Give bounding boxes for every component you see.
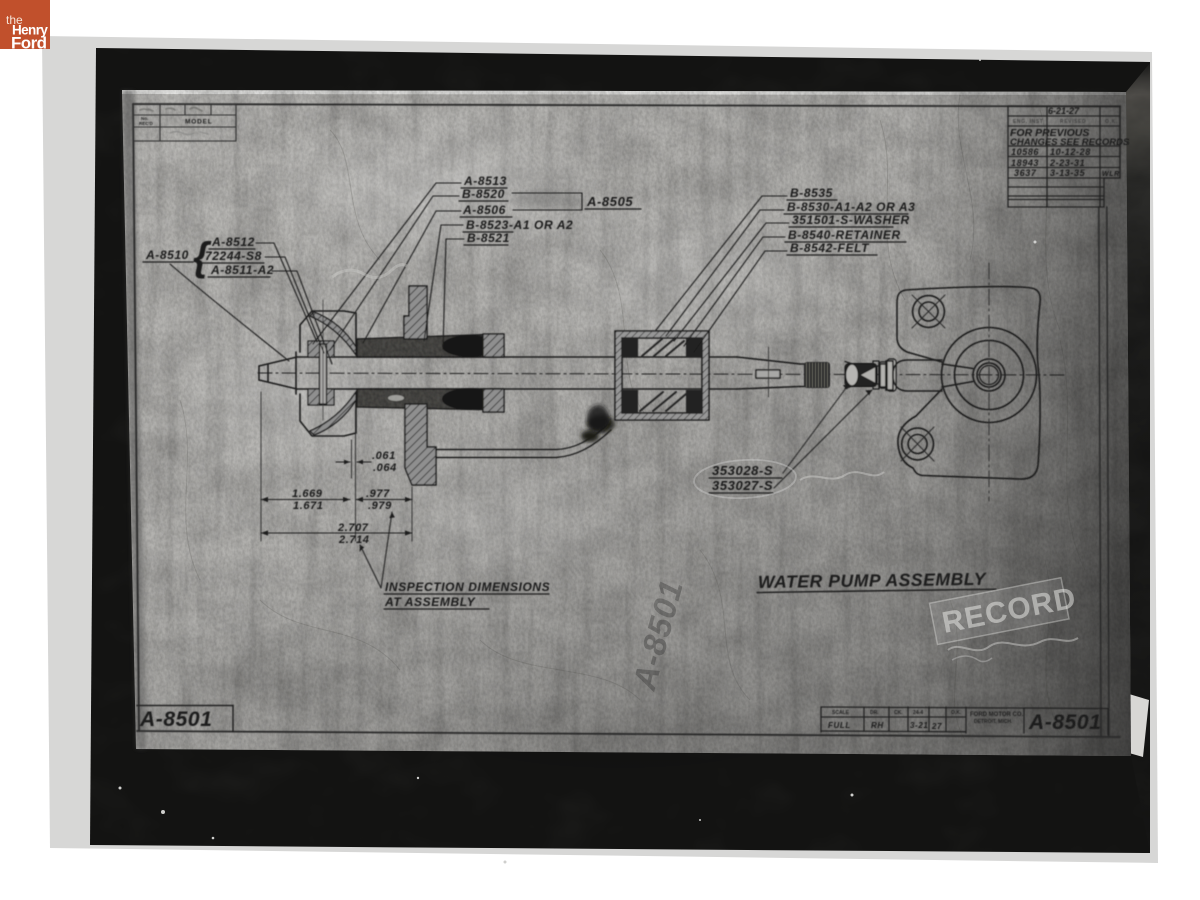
svg-text:A-8510: A-8510 [145,248,189,262]
svg-text:FORD MOTOR CO.: FORD MOTOR CO. [970,712,1024,718]
svg-text:27: 27 [931,722,942,731]
svg-text:A-8501: A-8501 [139,708,212,731]
svg-text:.977: .977 [366,488,390,500]
svg-text:B-8530-A1-A2 OR A3: B-8530-A1-A2 OR A3 [787,200,915,214]
svg-text:MODEL: MODEL [185,119,212,126]
svg-text:.979: .979 [368,500,392,512]
svg-text:B-8520: B-8520 [462,187,505,201]
svg-text:REVISED: REVISED [1060,119,1086,125]
svg-text:B-8521: B-8521 [467,231,510,245]
svg-text:72244-S8: 72244-S8 [205,249,262,263]
svg-text:351501-S-WASHER: 351501-S-WASHER [792,213,910,227]
svg-text:2-23-31: 2-23-31 [1049,158,1085,168]
svg-text:A-8513: A-8513 [463,174,507,188]
svg-text:1.671: 1.671 [293,500,324,512]
svg-text:2.707: 2.707 [337,522,369,534]
svg-text:3-21: 3-21 [910,721,928,730]
svg-text:ENG. INST: ENG. INST [1013,119,1043,125]
svg-text:6-21-27: 6-21-27 [1048,106,1080,116]
svg-text:O.K.: O.K. [1105,119,1118,125]
svg-text:B-8540-RETAINER: B-8540-RETAINER [788,228,901,242]
svg-text:RH: RH [871,721,884,730]
svg-text:353027-S: 353027-S [712,478,773,493]
svg-text:B-8523-A1 OR A2: B-8523-A1 OR A2 [466,218,573,232]
svg-text:1.669: 1.669 [292,488,323,500]
svg-text:AT ASSEMBLY: AT ASSEMBLY [384,595,476,609]
svg-text:A-8501: A-8501 [1028,711,1101,734]
svg-text:2.714: 2.714 [338,534,370,546]
svg-text:A-8512: A-8512 [211,235,255,249]
svg-text:WATER PUMP ASSEMBLY: WATER PUMP ASSEMBLY [758,569,987,592]
svg-text:A-8505: A-8505 [586,194,633,209]
svg-text:FULL: FULL [828,721,851,730]
svg-text:A-8511-A2: A-8511-A2 [210,263,274,277]
svg-text:B-8542-FELT: B-8542-FELT [790,241,870,255]
svg-text:.061: .061 [372,450,396,462]
svg-text:10586: 10586 [1011,147,1039,157]
svg-text:INSPECTION DIMENSIONS: INSPECTION DIMENSIONS [385,580,550,594]
svg-text:.064: .064 [373,462,397,474]
svg-text:CK.: CK. [894,710,903,716]
svg-text:Ford: Ford [11,34,47,53]
svg-text:3-13-35: 3-13-35 [1050,168,1086,178]
svg-text:WLR: WLR [1102,171,1120,178]
svg-text:SCALE: SCALE [832,710,850,716]
svg-text:B-8535: B-8535 [790,186,833,200]
svg-text:18943: 18943 [1011,158,1039,168]
svg-text:DR.: DR. [870,710,879,716]
svg-text:O.K.: O.K. [951,710,962,716]
svg-text:REC'D: REC'D [139,121,154,126]
svg-text:353028-S: 353028-S [712,463,773,478]
svg-text:10-12-28: 10-12-28 [1050,147,1091,157]
svg-text:3637: 3637 [1014,168,1037,178]
svg-text:DETROIT, MICH.: DETROIT, MICH. [974,719,1013,725]
svg-text:24-4: 24-4 [913,710,923,716]
svg-text:A-8506: A-8506 [462,203,506,217]
